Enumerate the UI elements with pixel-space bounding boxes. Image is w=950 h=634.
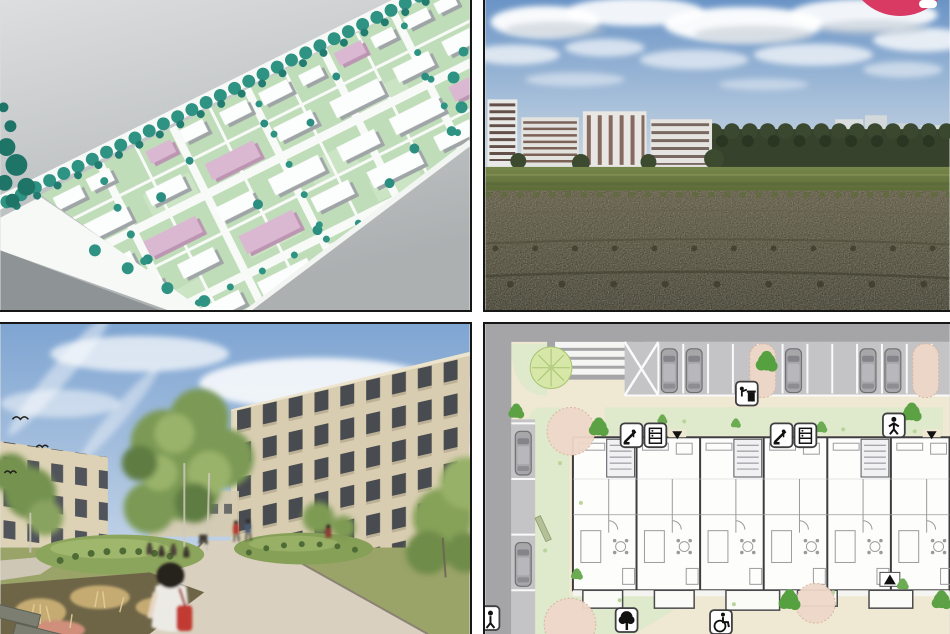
storage-shelf-icon-2 (795, 423, 817, 447)
apartment-building-plan (573, 429, 950, 610)
grass-strip (485, 167, 949, 193)
site-plan-image (485, 324, 950, 634)
tree-icon (616, 608, 638, 632)
courtyard-rendering-image (0, 324, 470, 634)
gallery-tile-field-photo[interactable] (483, 0, 950, 312)
gallery-tile-site-plan[interactable] (483, 322, 950, 634)
person-icon (883, 413, 905, 437)
field-photo-image (485, 0, 950, 310)
escalator-icon-2 (771, 423, 793, 447)
edge-icon-partial (485, 606, 499, 630)
large-canopy-tree (530, 347, 572, 389)
tree-line (709, 129, 949, 172)
waste-disposal-icon (736, 382, 758, 406)
gallery-tile-3d-site-model[interactable] (0, 0, 472, 312)
image-gallery-grid (0, 0, 950, 634)
storage-shelf-icon (644, 423, 666, 447)
3d-site-model-image (0, 0, 470, 310)
escalator-icon (621, 423, 643, 447)
badge-pill-icon (919, 0, 937, 8)
gallery-tile-courtyard-rendering[interactable] (0, 322, 472, 634)
wheelchair-accessible-icon (710, 610, 732, 634)
